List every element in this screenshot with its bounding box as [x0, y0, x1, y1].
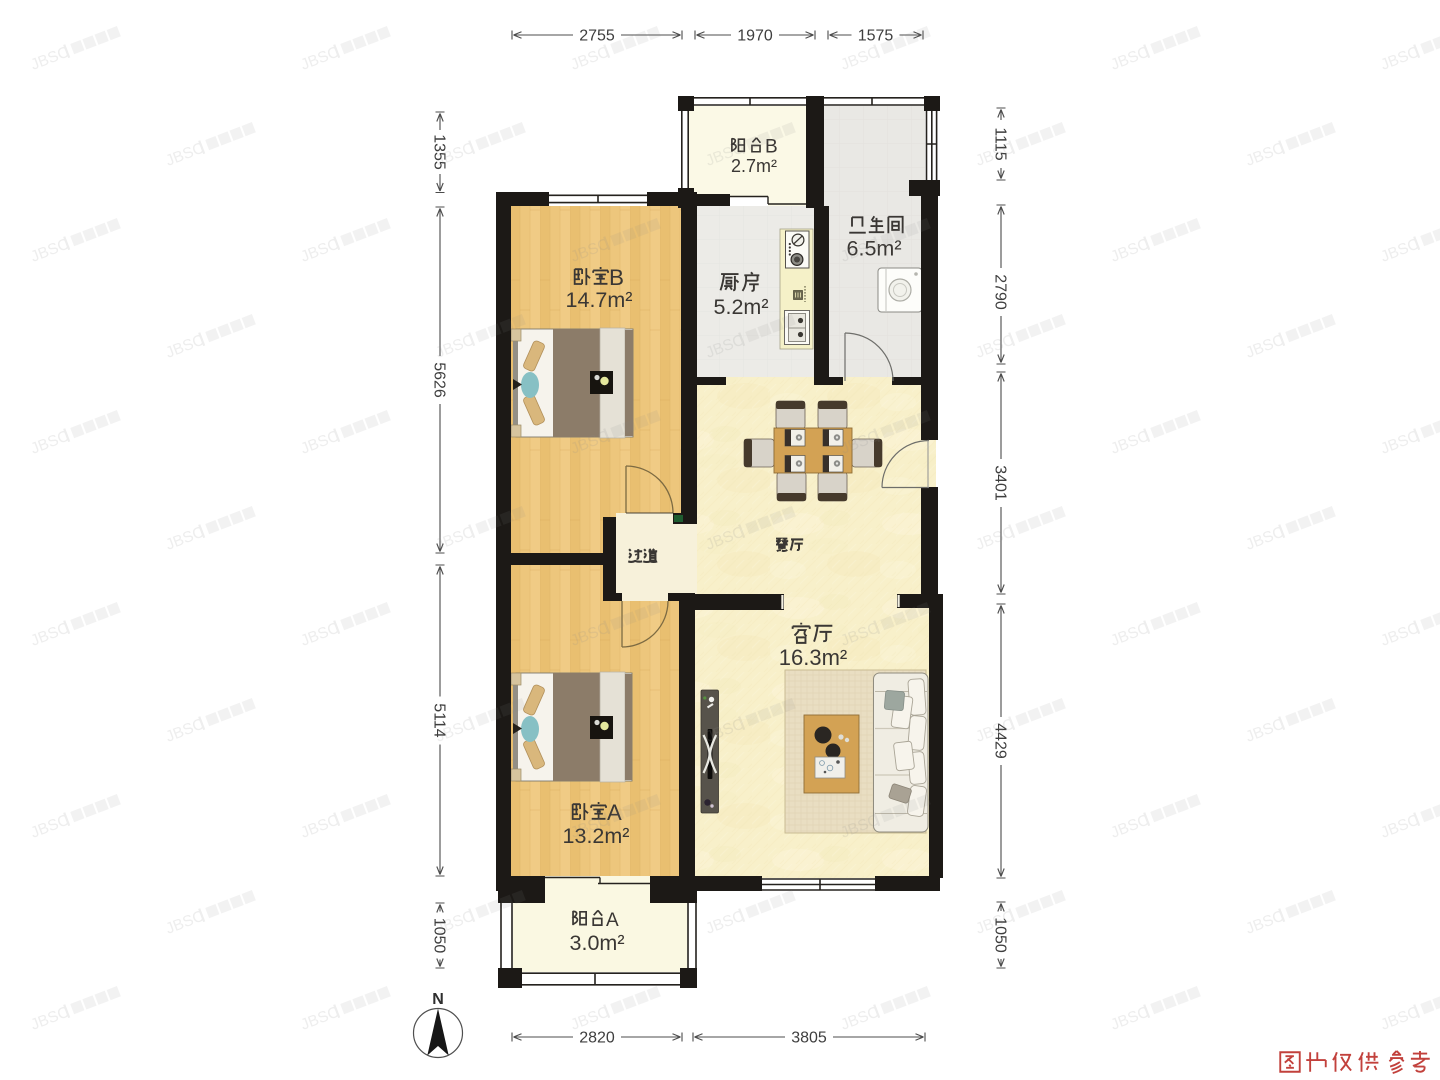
svg-text:A: A: [606, 910, 619, 931]
svg-text:3805: 3805: [791, 1030, 827, 1047]
svg-text:14.7m²: 14.7m²: [566, 288, 633, 312]
svg-text:B: B: [609, 265, 624, 290]
svg-text:5.2m²: 5.2m²: [714, 295, 769, 319]
svg-text:3401: 3401: [992, 465, 1009, 501]
svg-text:5626: 5626: [431, 362, 448, 398]
svg-text:2790: 2790: [992, 274, 1009, 310]
svg-text:2.7m²: 2.7m²: [731, 156, 777, 176]
svg-text:2820: 2820: [579, 1030, 615, 1047]
svg-text:1970: 1970: [737, 28, 773, 45]
svg-text:16.3m²: 16.3m²: [779, 645, 847, 670]
svg-text:3.0m²: 3.0m²: [570, 931, 625, 955]
svg-text:2755: 2755: [579, 28, 615, 45]
svg-text:N: N: [432, 991, 444, 1008]
